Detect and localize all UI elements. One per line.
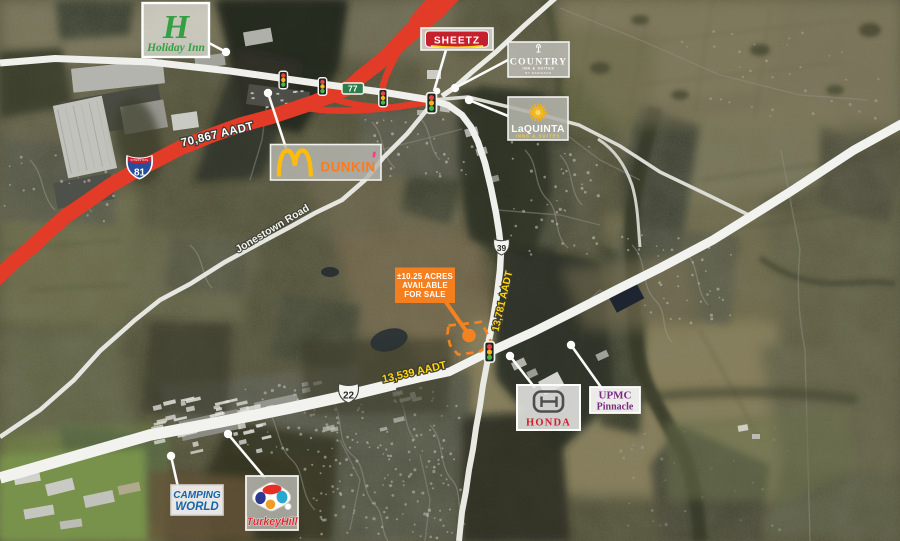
svg-text:81: 81 xyxy=(134,167,146,178)
svg-text:AVAILABLE: AVAILABLE xyxy=(402,281,448,290)
svg-text:77: 77 xyxy=(348,84,358,94)
svg-text:22: 22 xyxy=(343,390,355,401)
svg-text:WORLD: WORLD xyxy=(175,501,218,513)
svg-text:Pinnacle: Pinnacle xyxy=(597,402,634,413)
svg-text:INTERSTATE: INTERSTATE xyxy=(131,158,149,162)
svg-text:39: 39 xyxy=(497,243,507,253)
svg-text:INNS & SUITES: INNS & SUITES xyxy=(516,134,561,139)
svg-text:UPMC: UPMC xyxy=(599,390,632,402)
svg-text:±10.25 ACRES: ±10.25 ACRES xyxy=(397,272,453,281)
svg-text:INN & SUITES: INN & SUITES xyxy=(522,67,554,71)
svg-text:FOR SALE: FOR SALE xyxy=(404,290,446,299)
svg-text:CAMPING: CAMPING xyxy=(173,490,221,501)
svg-text:SHEETZ: SHEETZ xyxy=(434,35,480,46)
svg-text:TurkeyHill: TurkeyHill xyxy=(246,516,298,528)
svg-text:HONDA: HONDA xyxy=(526,418,571,429)
svg-text:H: H xyxy=(162,9,191,46)
svg-text:BY RADISSON: BY RADISSON xyxy=(525,71,551,75)
svg-text:Holiday Inn: Holiday Inn xyxy=(146,42,205,54)
svg-text:DUNKIN: DUNKIN xyxy=(320,160,375,175)
